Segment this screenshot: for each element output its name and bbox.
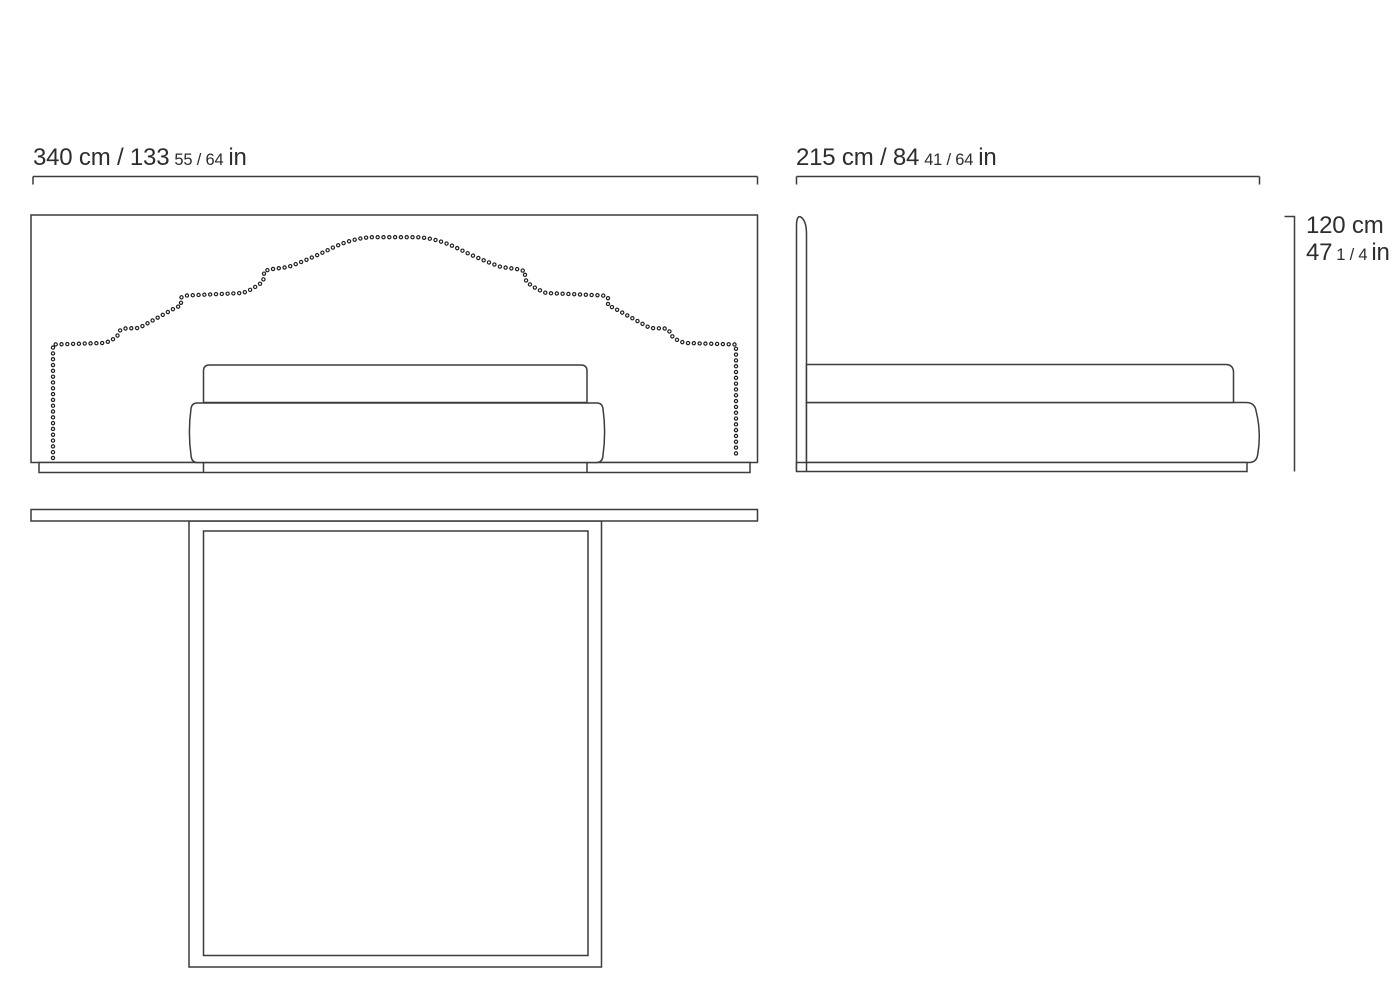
side-depth-dimension-line <box>797 177 1260 185</box>
front-mattress <box>204 365 588 403</box>
front-width-value: 340 cm / 133 <box>33 144 169 171</box>
height-in-unit: in <box>1371 239 1389 266</box>
side-headboard-panel <box>797 217 807 472</box>
plan-headboard-bar <box>31 510 758 522</box>
front-width-label: 340 cm / 13355 / 64in <box>33 146 247 172</box>
front-plinth <box>39 463 750 473</box>
front-bed-base <box>189 403 604 463</box>
side-mattress <box>807 365 1234 403</box>
side-view-drawing <box>797 177 1295 472</box>
height-label: 120 cm 471 / 4in <box>1306 212 1390 269</box>
height-cm-value: 120 cm <box>1306 212 1390 239</box>
top-view-drawing <box>31 510 758 968</box>
height-in-row: 471 / 4in <box>1306 239 1390 269</box>
front-width-unit: in <box>228 144 246 171</box>
technical-drawing-canvas: 340 cm / 13355 / 64in 215 cm / 8441 / 64… <box>0 0 1400 1001</box>
side-depth-fraction: 41 / 64 <box>924 151 973 169</box>
front-width-dimension-line <box>33 177 758 185</box>
side-depth-unit: in <box>978 144 996 171</box>
side-depth-value: 215 cm / 84 <box>796 144 919 171</box>
front-width-fraction: 55 / 64 <box>174 151 223 169</box>
side-depth-label: 215 cm / 8441 / 64in <box>796 146 997 172</box>
side-bed-base <box>807 403 1260 463</box>
height-in-fraction: 1 / 4 <box>1336 246 1367 264</box>
height-dimension-bracket <box>1285 217 1295 472</box>
side-plinth <box>797 463 1248 472</box>
height-in-value: 47 <box>1306 239 1332 266</box>
front-view-drawing <box>31 177 758 473</box>
plan-mattress <box>204 531 589 956</box>
